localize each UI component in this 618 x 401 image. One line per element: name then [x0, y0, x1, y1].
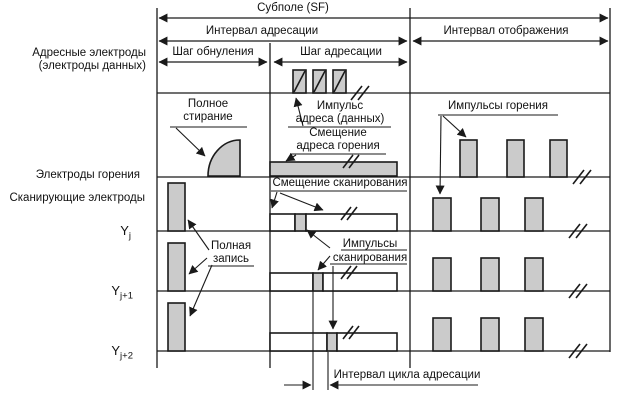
scan-bias-label: Смещение сканирования [265, 177, 415, 190]
row-label-yj1: Yj+1 [0, 283, 133, 302]
full-write-label: Полная запись [181, 240, 281, 266]
address-data-pulses [293, 70, 346, 93]
scan-pulses-label: Импульсы сканирования [320, 237, 420, 265]
scan-row-yj-waveform [168, 183, 543, 231]
scan-electrodes-label: Сканирующие электроды [0, 192, 145, 205]
subfield-title: Субполе (SF) [218, 2, 368, 15]
addressing-cycle-label: Интервал цикла адресации [332, 369, 482, 382]
sustain-pulses-label: Импульсы горения [423, 100, 573, 113]
address-electrodes-line1: Адресные электроды [0, 47, 146, 60]
row-label-yj: Yj [0, 223, 131, 242]
address-electrodes-label: Адресные электроды (электроды данных) [0, 47, 146, 73]
scan-row-yj2-waveform [168, 303, 543, 351]
address-electrodes-line2: (электроды данных) [0, 60, 146, 73]
row-label-yj2: Yj+2 [0, 343, 133, 362]
sustain-bias-rect [270, 162, 397, 176]
sustain-electrodes-label: Электроды горения [0, 169, 140, 182]
display-interval-label: Интервал отображения [431, 25, 581, 38]
address-pulse-label: Импульс адреса (данных) [270, 100, 410, 126]
addressing-step-label: Шаг адресации [266, 46, 416, 59]
sustain-bias-label: Смещение адреса горения [268, 127, 408, 153]
addressing-interval-label: Интервал адресации [187, 25, 337, 38]
sustain-display-pulses [460, 140, 567, 177]
erase-ramp-shape [208, 140, 240, 176]
full-erase-label: Полное стирание [158, 98, 258, 124]
timing-diagram: Субполе (SF) Интервал адресации Интервал… [0, 0, 618, 401]
